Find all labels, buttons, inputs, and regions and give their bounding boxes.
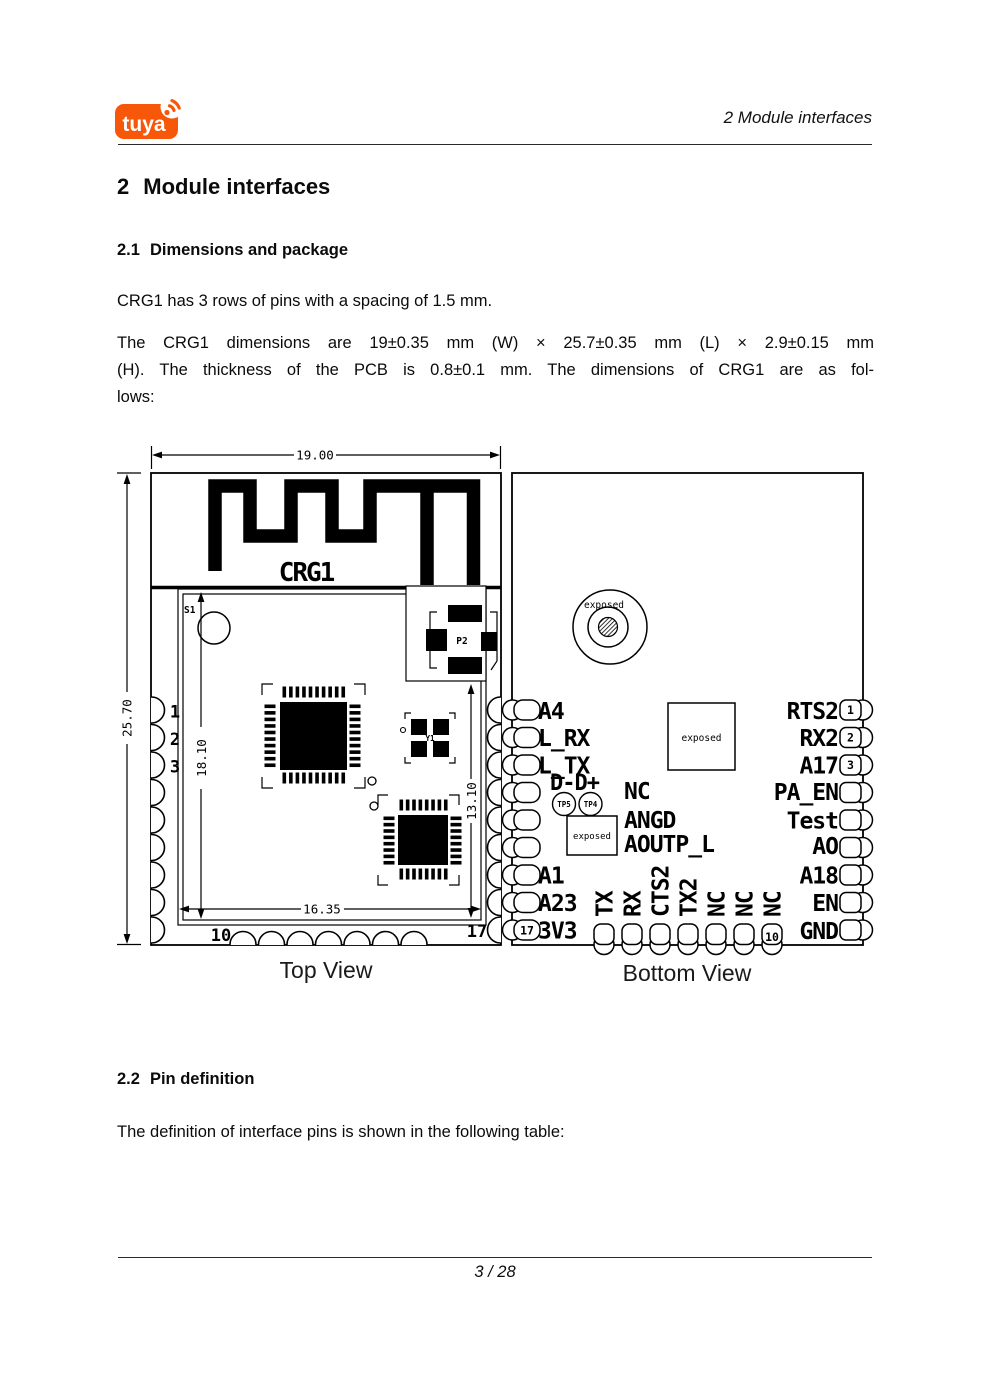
dimension-height: 25.70 xyxy=(117,473,141,945)
ic-pin-stub xyxy=(384,842,395,846)
pin-number-3: 3 xyxy=(170,758,180,778)
pad-number: 17 xyxy=(520,924,534,938)
ic-pin-stub xyxy=(265,757,276,761)
ic-pin-stub xyxy=(350,731,361,735)
pin-pad xyxy=(514,783,540,803)
pin-pad xyxy=(514,893,540,913)
ic-pin-stub xyxy=(350,763,361,767)
ic-pin-stub xyxy=(444,800,448,811)
pin-label: L_TX xyxy=(538,754,591,780)
exposed-label: exposed xyxy=(681,733,721,744)
castellation-pin xyxy=(139,807,165,833)
subsection-title-text: Pin definition xyxy=(150,1070,255,1088)
pin-pad xyxy=(840,783,861,803)
ic-pin-stub xyxy=(335,687,339,698)
castellation-pin xyxy=(139,862,165,888)
dim-right-height-value: 13.10 xyxy=(464,782,479,820)
ic-pin-stub xyxy=(350,744,361,748)
ic-pin-stub xyxy=(425,869,429,880)
castellation-pin xyxy=(139,890,165,916)
ic-pin-stub xyxy=(384,855,395,859)
pin-pad xyxy=(594,924,614,945)
pin-label: EN xyxy=(812,891,838,917)
ic-pin-stub xyxy=(419,869,423,880)
castellation-pin xyxy=(230,932,256,958)
castellation-pin xyxy=(139,752,165,778)
dim-height-value: 25.70 xyxy=(120,699,135,737)
castellation-pin xyxy=(139,835,165,861)
pin-label: A17 xyxy=(799,754,838,780)
ic-pin-stub xyxy=(431,800,435,811)
pin-label: AO xyxy=(812,834,838,860)
top-view-caption: Top View xyxy=(280,957,373,983)
section-title-text: Module interfaces xyxy=(143,174,330,199)
ic-pin-stub xyxy=(322,687,326,698)
subsection-2-1-heading: 2.1Dimensions and package xyxy=(117,241,348,260)
pad-number: 1 xyxy=(847,703,854,717)
ic-pin-stub xyxy=(451,861,462,865)
ic-pin-stub xyxy=(406,869,410,880)
datasheet-page: { "header": { "logo_text": "tuya", "runn… xyxy=(0,0,990,1400)
ic-pin-stub xyxy=(328,773,332,784)
pin-label: RTS2 xyxy=(787,699,838,725)
pin-pad xyxy=(622,924,642,945)
header-rule xyxy=(118,144,872,145)
pin-pad xyxy=(840,865,861,885)
pin-number-2: 2 xyxy=(170,730,180,750)
subsection-number: 2.2 xyxy=(117,1070,140,1088)
pin-pad xyxy=(840,893,861,913)
pin-number-17: 17 xyxy=(467,922,487,942)
exposed-label: exposed xyxy=(573,832,611,842)
package-drawing: 19.00 25.70 CRG1 P2 S1 xyxy=(112,438,888,1004)
ic-pin-stub xyxy=(425,800,429,811)
ic-pin-stub xyxy=(283,773,287,784)
dim-inner-height-value: 18.10 xyxy=(194,739,209,777)
ic-pin-stub xyxy=(412,800,416,811)
silkscreen-module-name: CRG1 xyxy=(279,558,335,588)
pin-label: Test xyxy=(787,809,839,835)
paragraph-dimensions-line2: (H). The thickness of the PCB is 0.8±0.1… xyxy=(117,357,874,385)
pin-pad xyxy=(734,924,754,945)
ic-pin-stub xyxy=(322,773,326,784)
castellation-pin xyxy=(344,932,370,958)
ic-pin-stub xyxy=(400,800,404,811)
ic-pin-stub xyxy=(265,718,276,722)
ic-pin-stub xyxy=(315,687,319,698)
pin-label: NC xyxy=(761,891,787,917)
ic-pin-stub xyxy=(451,829,462,833)
pin-pad xyxy=(840,838,861,858)
ic-pin-stub xyxy=(350,705,361,709)
ic-pin-stub xyxy=(384,829,395,833)
pin-label: L_RX xyxy=(538,726,591,752)
pin-pad xyxy=(514,810,540,830)
ic-pin-stub xyxy=(335,773,339,784)
ic-pin-stub xyxy=(302,773,306,784)
ic-pin-stub xyxy=(438,800,442,811)
pin-label: NC xyxy=(705,891,731,917)
ic-pin-stub xyxy=(384,848,395,852)
paragraph-pin-spacing: CRG1 has 3 rows of pins with a spacing o… xyxy=(117,292,492,311)
ic-pin-stub xyxy=(265,737,276,741)
dim-width-value: 19.00 xyxy=(296,448,334,463)
running-header-title: 2 Module interfaces xyxy=(118,108,872,128)
castellation-pin xyxy=(373,932,399,958)
pin-pad xyxy=(514,700,540,720)
ic-pin-stub xyxy=(341,773,345,784)
ic-pin-stub xyxy=(265,724,276,728)
castellation-pin xyxy=(401,932,427,958)
ic-pin-stub xyxy=(384,861,395,865)
pad-number: 3 xyxy=(847,758,854,772)
ic-pin-stub xyxy=(350,724,361,728)
pad-number: 10 xyxy=(765,930,779,944)
ic-pin-stub xyxy=(384,817,395,821)
ic-pin-stub xyxy=(350,757,361,761)
ic-pin-stub xyxy=(350,737,361,741)
ic-pin-stub xyxy=(400,869,404,880)
ic-pin-stub xyxy=(384,836,395,840)
ic-pin-stub xyxy=(265,763,276,767)
pin-label: 3V3 xyxy=(538,919,577,945)
pin-label: CTS2 xyxy=(649,866,675,917)
pin-label: A23 xyxy=(538,891,577,917)
connector-p2: P2 xyxy=(406,586,497,681)
pin-label: TX xyxy=(593,890,619,917)
ref-s1-label: S1 xyxy=(184,605,196,616)
ic-pin-stub xyxy=(451,848,462,852)
ic-pin-stub xyxy=(431,869,435,880)
ic-pin-stub xyxy=(302,687,306,698)
pin-label: RX2 xyxy=(799,726,838,752)
pin-number-1: 1 xyxy=(170,703,180,723)
ic-pin-stub xyxy=(265,705,276,709)
paragraph-dimensions-line3: lows: xyxy=(117,384,874,412)
pin-label: NC xyxy=(624,779,650,805)
castellation-pin xyxy=(259,932,285,958)
ic-pin-stub xyxy=(315,773,319,784)
pin-label: PA_EN xyxy=(774,780,838,806)
ic-pin-stub xyxy=(289,773,293,784)
pin-label: A18 xyxy=(799,864,838,890)
paragraph-dimensions-line1: The CRG1 dimensions are 19±0.35 mm (W) ×… xyxy=(117,330,874,358)
pin-label: NC xyxy=(733,891,759,917)
ic-pin-stub xyxy=(341,687,345,698)
ref-p2-label: P2 xyxy=(456,636,467,647)
ic-pin-stub xyxy=(265,711,276,715)
pin-pad xyxy=(706,924,726,945)
castellation-pin xyxy=(316,932,342,958)
svg-text:TP5: TP5 xyxy=(557,800,571,809)
pin-number-10: 10 xyxy=(211,926,231,946)
castellation-pin xyxy=(139,917,165,943)
ic-pin-stub xyxy=(451,836,462,840)
pin-pad xyxy=(514,865,540,885)
ic-pin-stub xyxy=(350,750,361,754)
pin-pad xyxy=(678,924,698,945)
paragraph-pin-definition: The definition of interface pins is show… xyxy=(117,1123,565,1142)
subsection-number: 2.1 xyxy=(117,241,140,259)
ic-pin-stub xyxy=(309,687,313,698)
pin-pad xyxy=(514,838,540,858)
ic-pin-stub xyxy=(412,869,416,880)
ic-pin-stub xyxy=(419,800,423,811)
footer-rule xyxy=(118,1257,872,1258)
castellation-pin xyxy=(139,780,165,806)
pin-pad xyxy=(840,920,861,940)
bottom-view-caption: Bottom View xyxy=(623,960,752,986)
ic-pin-stub xyxy=(296,687,300,698)
ic-pin-stub xyxy=(309,773,313,784)
ic-pin-stub xyxy=(289,687,293,698)
ic-pin-stub xyxy=(451,842,462,846)
pin-label: GND xyxy=(799,919,838,945)
ic-pin-stub xyxy=(444,869,448,880)
ic-pin-stub xyxy=(384,823,395,827)
svg-text:TP4: TP4 xyxy=(584,800,598,809)
section-number: 2 xyxy=(117,174,129,199)
ic-pin-stub xyxy=(296,773,300,784)
castellation-pin xyxy=(287,932,313,958)
pin-label: ANGD xyxy=(624,808,676,834)
pin-label: AOUTP_L xyxy=(624,832,714,858)
exposed-label: exposed xyxy=(584,600,624,611)
subsection-2-2-heading: 2.2Pin definition xyxy=(117,1070,254,1089)
dimension-width: 19.00 xyxy=(152,446,501,469)
ic-pin-stub xyxy=(283,687,287,698)
pin-label: A1 xyxy=(538,864,564,890)
pad-number: 2 xyxy=(847,731,854,745)
ic-pin-stub xyxy=(406,800,410,811)
pin-label: A4 xyxy=(538,699,564,725)
pin-pad xyxy=(514,728,540,748)
ic-pin-stub xyxy=(350,711,361,715)
ic-pin-stub xyxy=(451,817,462,821)
ref-y1-label: Y1 xyxy=(425,734,435,743)
ic-pin-stub xyxy=(451,823,462,827)
pin-label: TX2 xyxy=(677,878,703,917)
ic-pin-stub xyxy=(350,718,361,722)
dim-inner-width-value: 16.35 xyxy=(303,902,341,917)
page-number: 3 / 28 xyxy=(0,1263,990,1282)
ic-pin-stub xyxy=(265,731,276,735)
pin-label: RX xyxy=(621,890,647,917)
pin-pad xyxy=(514,755,540,775)
pin-pad xyxy=(840,810,861,830)
section-heading: 2Module interfaces xyxy=(117,174,330,200)
ic-pin-stub xyxy=(451,855,462,859)
pin-pad xyxy=(650,924,670,945)
castellation-pin xyxy=(139,697,165,723)
ic-pin-stub xyxy=(265,750,276,754)
castellation-pin xyxy=(139,725,165,751)
subsection-title-text: Dimensions and package xyxy=(150,241,348,259)
ic-pin-stub xyxy=(438,869,442,880)
ic-pin-stub xyxy=(265,744,276,748)
ic-pin-stub xyxy=(328,687,332,698)
